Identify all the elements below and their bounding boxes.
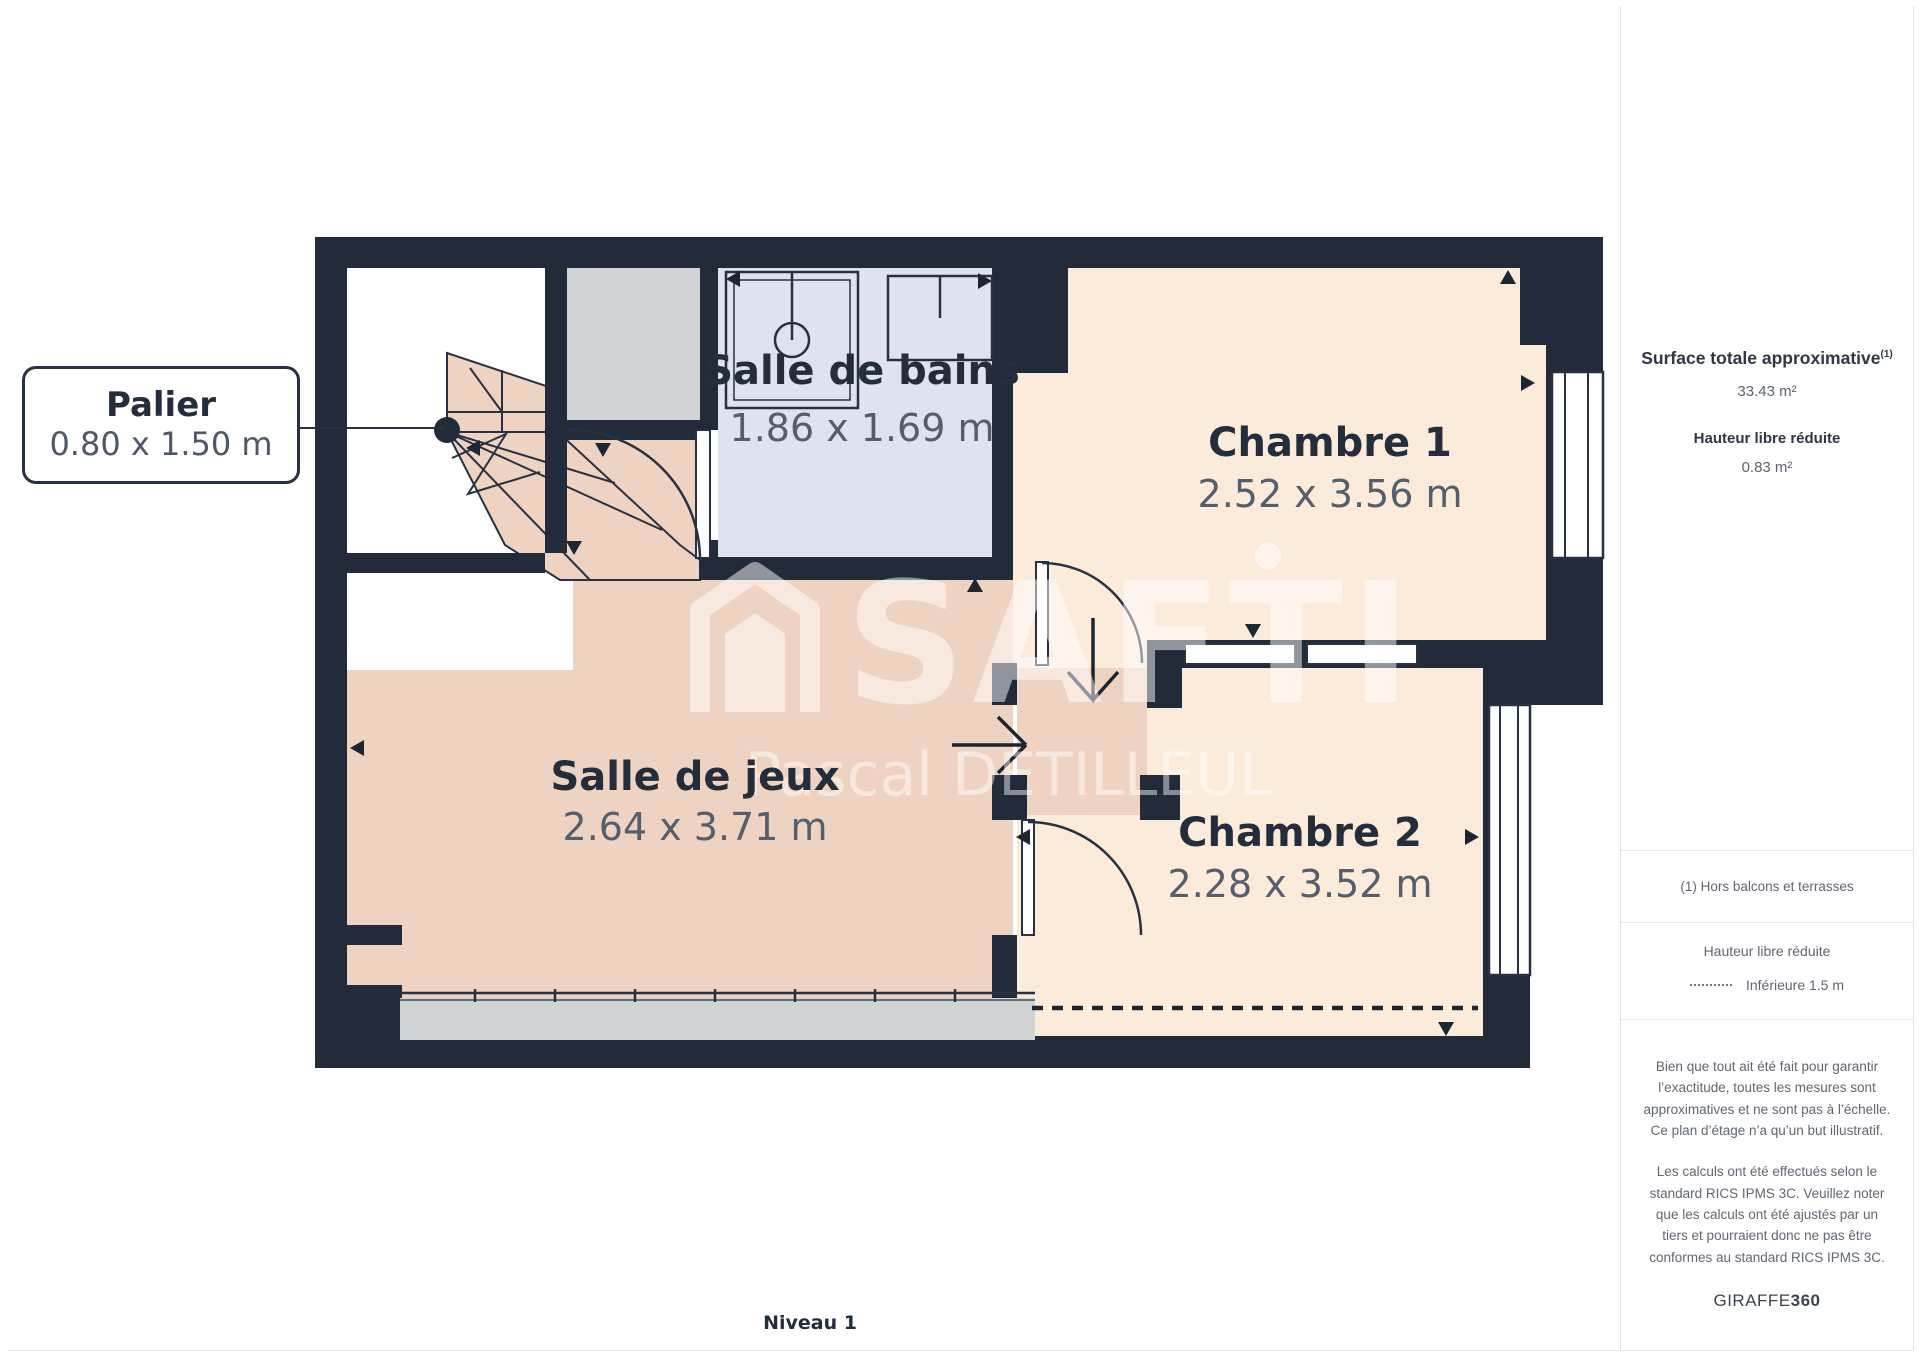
legend-title: Hauteur libre réduite: [1639, 943, 1895, 959]
surface-title: Surface totale approximative(1): [1621, 348, 1913, 369]
bedroom2-label: Chambre 2: [1178, 810, 1422, 856]
palier-callout: Palier 0.80 x 1.50 m: [22, 366, 300, 484]
info-sidebar: Surface totale approximative(1) 33.43 m²…: [1620, 6, 1914, 1350]
palier-dims: 0.80 x 1.50 m: [49, 425, 272, 463]
floorplan-drawing: SAFTI Pascal DETILLEUL Salle de bains 1.…: [0, 0, 1620, 1358]
disclaimer: Bien que tout ait été fait pour garantir…: [1621, 1020, 1913, 1315]
dotted-line-icon: [1690, 984, 1732, 986]
disclaimer-paragraph-1: Bien que tout ait été fait pour garantir…: [1643, 1056, 1891, 1141]
palier-label: Palier: [106, 387, 216, 424]
bedroom2-window: [1489, 705, 1530, 975]
playroom-dims: 2.64 x 3.71 m: [563, 805, 828, 849]
surface-footnote-marker: (1): [1881, 349, 1893, 360]
surface-title-text: Surface totale approximative: [1641, 348, 1880, 368]
disclaimer-paragraph-2: Les calculs ont été effectués selon le s…: [1643, 1161, 1891, 1268]
stair-pivot-dot: [434, 417, 460, 443]
level-label: Niveau 1: [0, 1312, 1620, 1334]
legend: Hauteur libre réduite Inférieure 1.5 m: [1621, 923, 1913, 1019]
bedroom2-dims: 2.28 x 3.52 m: [1168, 862, 1433, 906]
spacer: [1621, 476, 1913, 850]
void-closet-floor: [567, 268, 700, 420]
bedroom1-window: [1552, 372, 1603, 558]
surface-stats: Surface totale approximative(1) 33.43 m²…: [1621, 6, 1913, 476]
giraffe-text: GIRAFFE: [1713, 1291, 1790, 1310]
reduced-height-value: 0.83 m²: [1621, 459, 1913, 476]
bedroom1-dims: 2.52 x 3.56 m: [1198, 472, 1463, 516]
reduced-height-title: Hauteur libre réduite: [1621, 430, 1913, 447]
safti-i-dot: [1255, 543, 1281, 569]
floorplan-area: SAFTI Pascal DETILLEUL Salle de bains 1.…: [0, 0, 1620, 1358]
surface-value: 33.43 m²: [1621, 383, 1913, 400]
footnote: (1) Hors balcons et terrasses: [1621, 851, 1913, 922]
watermark-brand: SAFTI: [845, 546, 1418, 742]
playroom-label: Salle de jeux: [550, 754, 839, 800]
giraffe-360-text: 360: [1791, 1291, 1821, 1310]
floorplan-page: SAFTI Pascal DETILLEUL Salle de bains 1.…: [0, 0, 1920, 1358]
palier-lower-floor: [347, 573, 560, 673]
bedroom1-label: Chambre 1: [1208, 420, 1452, 466]
bathroom-label: Salle de bains: [704, 348, 1020, 394]
legend-row: Inférieure 1.5 m: [1639, 977, 1895, 993]
bathroom-dims: 1.86 x 1.69 m: [730, 406, 995, 450]
legend-item: Inférieure 1.5 m: [1746, 977, 1844, 993]
giraffe360-logo: GIRAFFE360: [1643, 1288, 1891, 1315]
page-footer-divider: [8, 1350, 1912, 1351]
